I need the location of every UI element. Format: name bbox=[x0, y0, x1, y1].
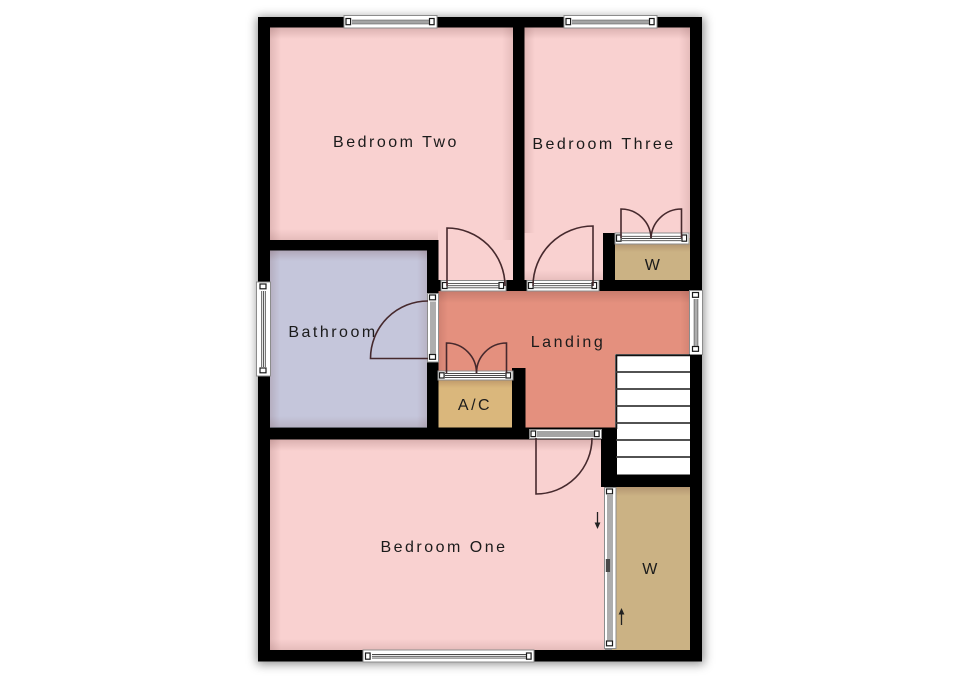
svg-text:W: W bbox=[645, 257, 663, 274]
svg-text:Bedroom One: Bedroom One bbox=[380, 539, 507, 556]
svg-text:Bedroom Two: Bedroom Two bbox=[333, 134, 459, 151]
svg-text:Bedroom Three: Bedroom Three bbox=[532, 136, 675, 153]
svg-text:Bathroom: Bathroom bbox=[288, 324, 377, 341]
svg-text:W: W bbox=[642, 561, 660, 578]
svg-text:Landing: Landing bbox=[531, 334, 605, 351]
svg-text:A/C: A/C bbox=[458, 397, 492, 414]
